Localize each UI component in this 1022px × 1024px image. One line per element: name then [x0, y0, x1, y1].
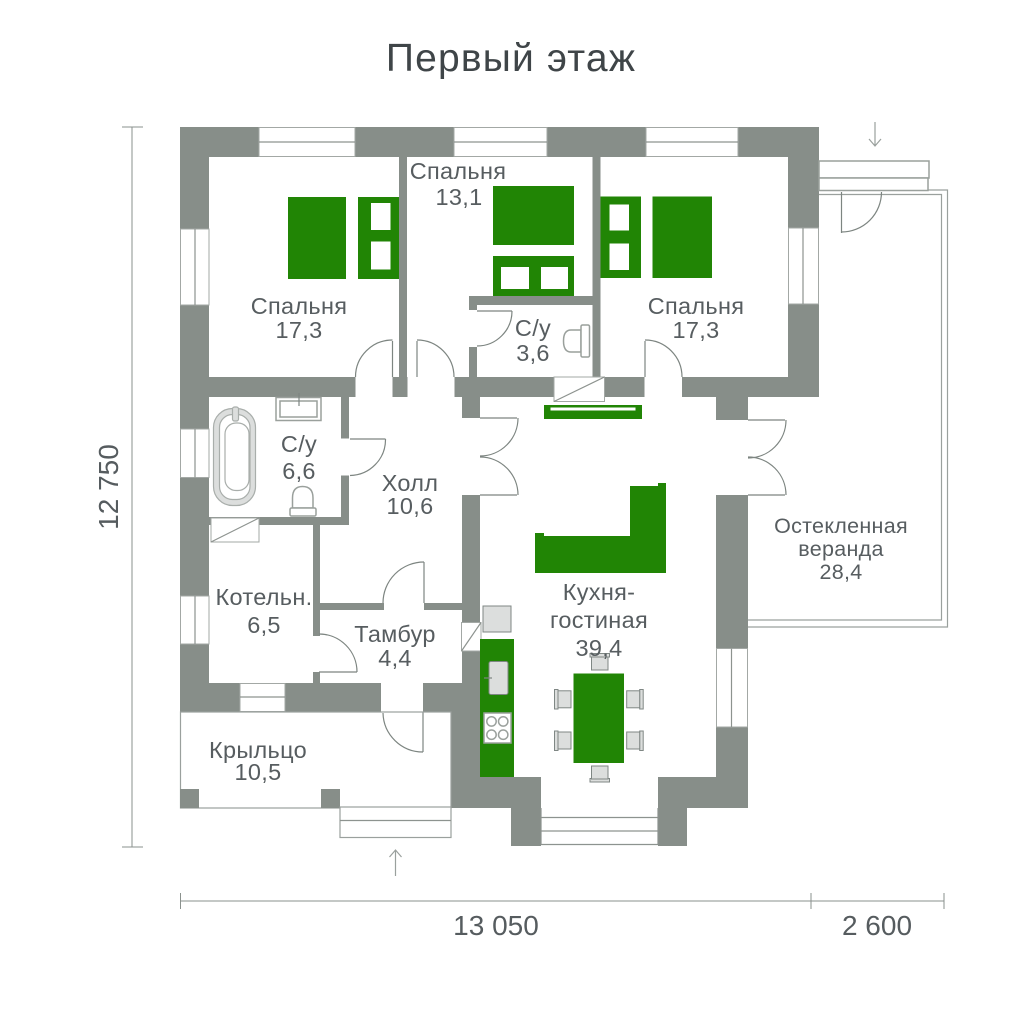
svg-text:веранда: веранда — [798, 537, 884, 561]
svg-text:13,1: 13,1 — [436, 184, 483, 210]
svg-text:6,6: 6,6 — [282, 458, 316, 484]
svg-text:28,4: 28,4 — [819, 560, 862, 584]
svg-text:Остекленная: Остекленная — [774, 514, 908, 538]
svg-text:10,5: 10,5 — [235, 759, 282, 785]
svg-text:10,6: 10,6 — [387, 493, 434, 519]
svg-text:гостиная: гостиная — [550, 607, 648, 633]
svg-text:С/у: С/у — [281, 431, 317, 457]
svg-text:6,5: 6,5 — [247, 612, 281, 638]
svg-text:39,4: 39,4 — [576, 635, 623, 661]
svg-text:Первый этаж: Первый этаж — [386, 37, 636, 80]
svg-text:Кухня-: Кухня- — [563, 579, 636, 605]
svg-text:13 050: 13 050 — [453, 910, 539, 941]
svg-text:Спальня: Спальня — [251, 293, 348, 319]
svg-text:Тамбур: Тамбур — [354, 621, 436, 647]
svg-text:17,3: 17,3 — [673, 317, 720, 343]
svg-text:3,6: 3,6 — [516, 340, 550, 366]
svg-text:Спальня: Спальня — [648, 293, 745, 319]
svg-text:Котельн.: Котельн. — [216, 584, 313, 610]
svg-text:Спальня: Спальня — [410, 158, 507, 184]
svg-text:2 600: 2 600 — [842, 910, 912, 941]
svg-text:С/у: С/у — [515, 315, 551, 341]
svg-text:12 750: 12 750 — [93, 444, 124, 530]
svg-text:17,3: 17,3 — [276, 317, 323, 343]
svg-text:4,4: 4,4 — [378, 645, 412, 671]
